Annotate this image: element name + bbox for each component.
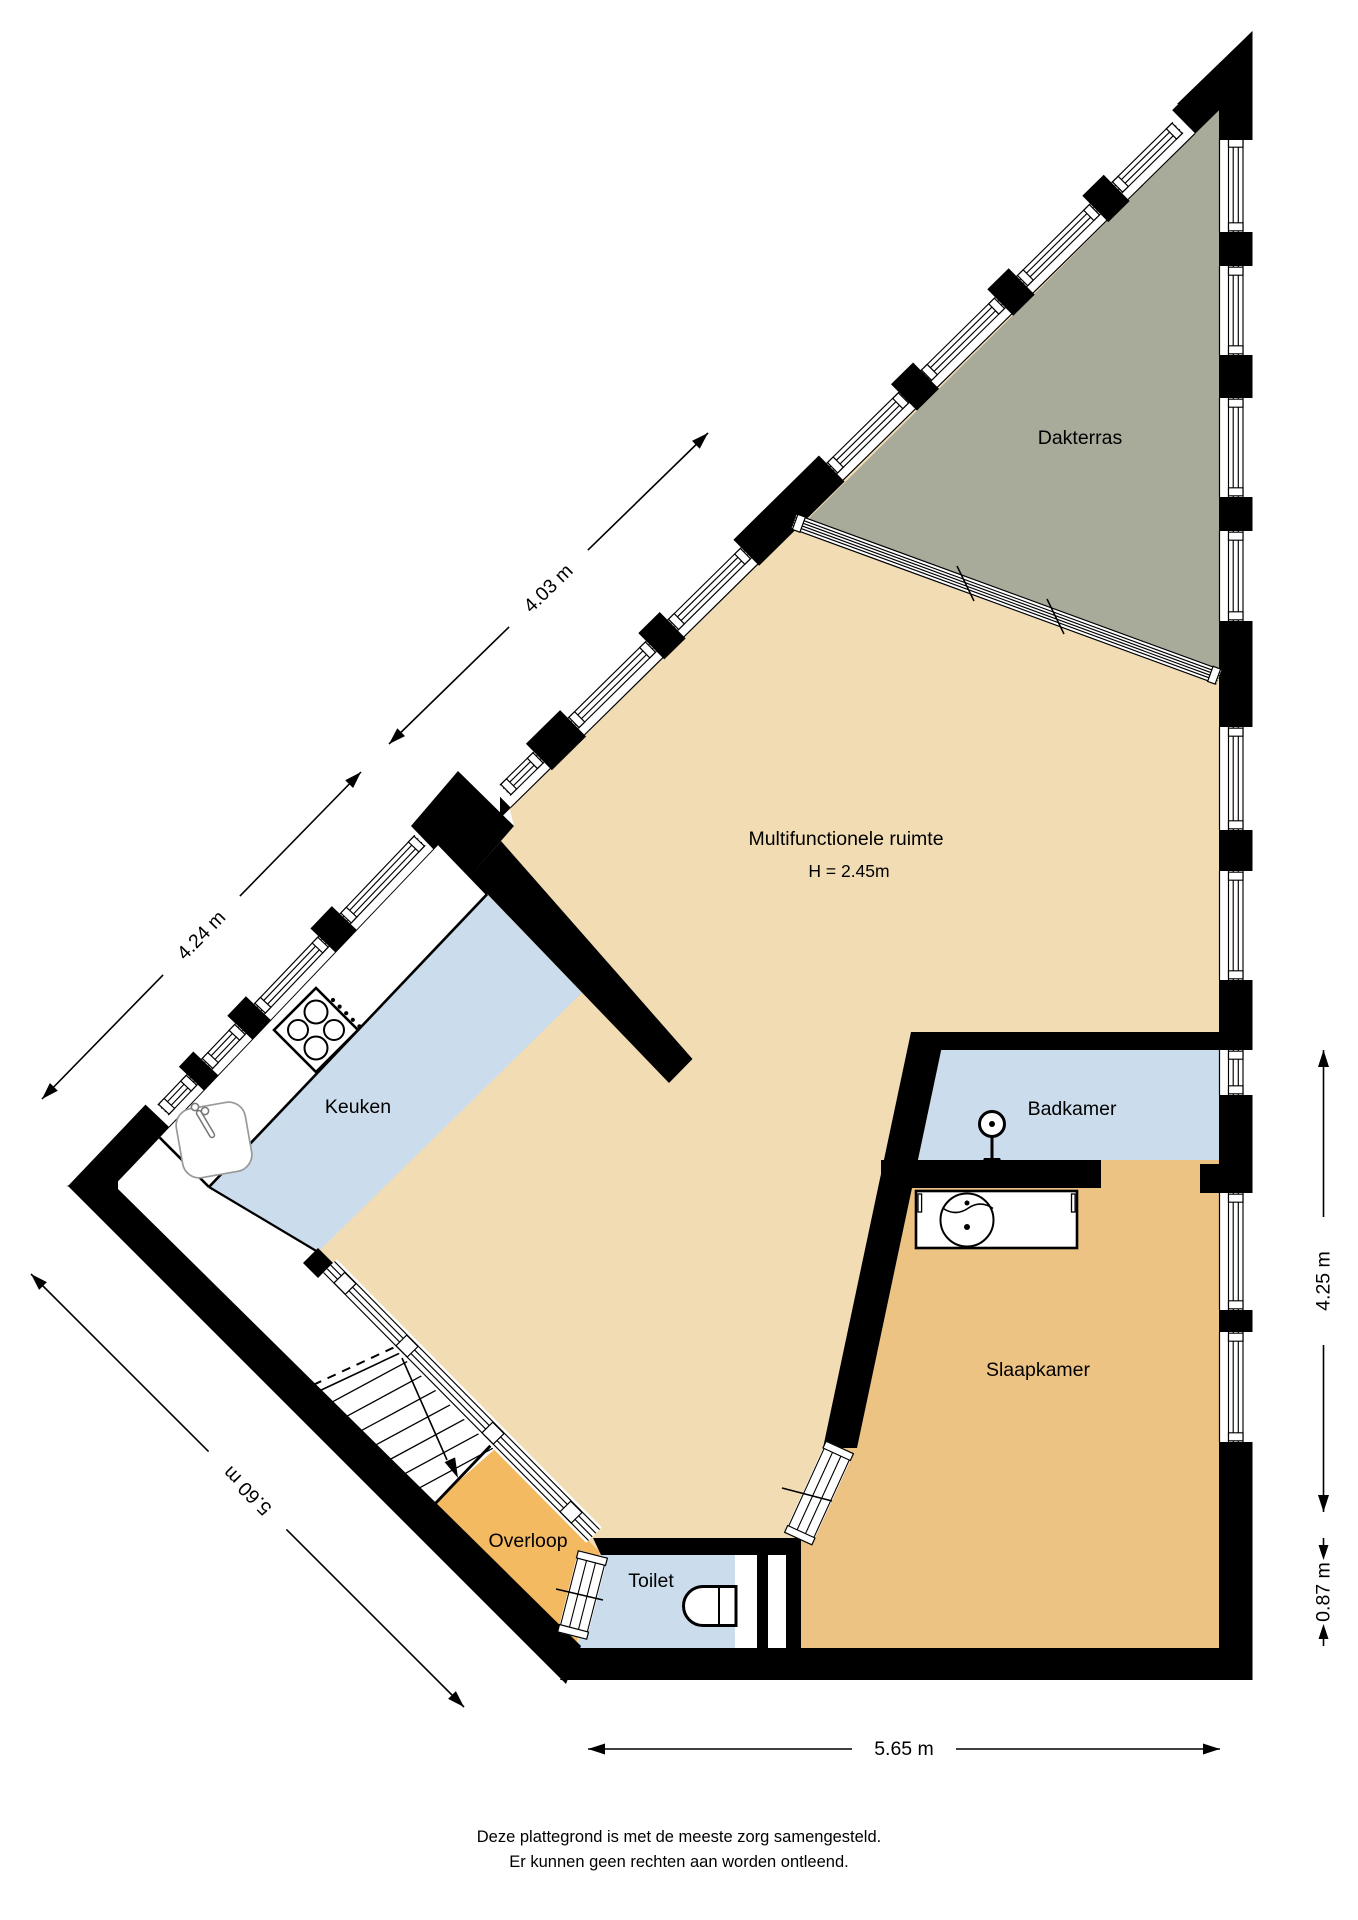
- svg-text:Deze plattegrond is met de mee: Deze plattegrond is met de meeste zorg s…: [477, 1828, 881, 1846]
- svg-text:Slaapkamer: Slaapkamer: [986, 1359, 1091, 1381]
- svg-text:4.03 m: 4.03 m: [519, 560, 577, 617]
- svg-text:Toilet: Toilet: [628, 1570, 674, 1592]
- svg-text:Keuken: Keuken: [325, 1096, 391, 1118]
- svg-text:4.24 m: 4.24 m: [173, 906, 230, 964]
- svg-text:Multifunctionele ruimte: Multifunctionele ruimte: [748, 828, 943, 850]
- svg-text:5.60 m: 5.60 m: [219, 1462, 277, 1520]
- svg-text:Er kunnen geen rechten aan wor: Er kunnen geen rechten aan worden ontlee…: [509, 1853, 848, 1871]
- svg-text:H = 2.45m: H = 2.45m: [808, 861, 889, 881]
- svg-text:Dakterras: Dakterras: [1038, 427, 1123, 449]
- svg-text:4.25 m: 4.25 m: [1313, 1251, 1335, 1311]
- svg-text:Badkamer: Badkamer: [1028, 1098, 1117, 1120]
- svg-text:5.65 m: 5.65 m: [874, 1738, 934, 1760]
- svg-text:Overloop: Overloop: [488, 1530, 567, 1552]
- svg-text:0.87 m: 0.87 m: [1313, 1562, 1335, 1622]
